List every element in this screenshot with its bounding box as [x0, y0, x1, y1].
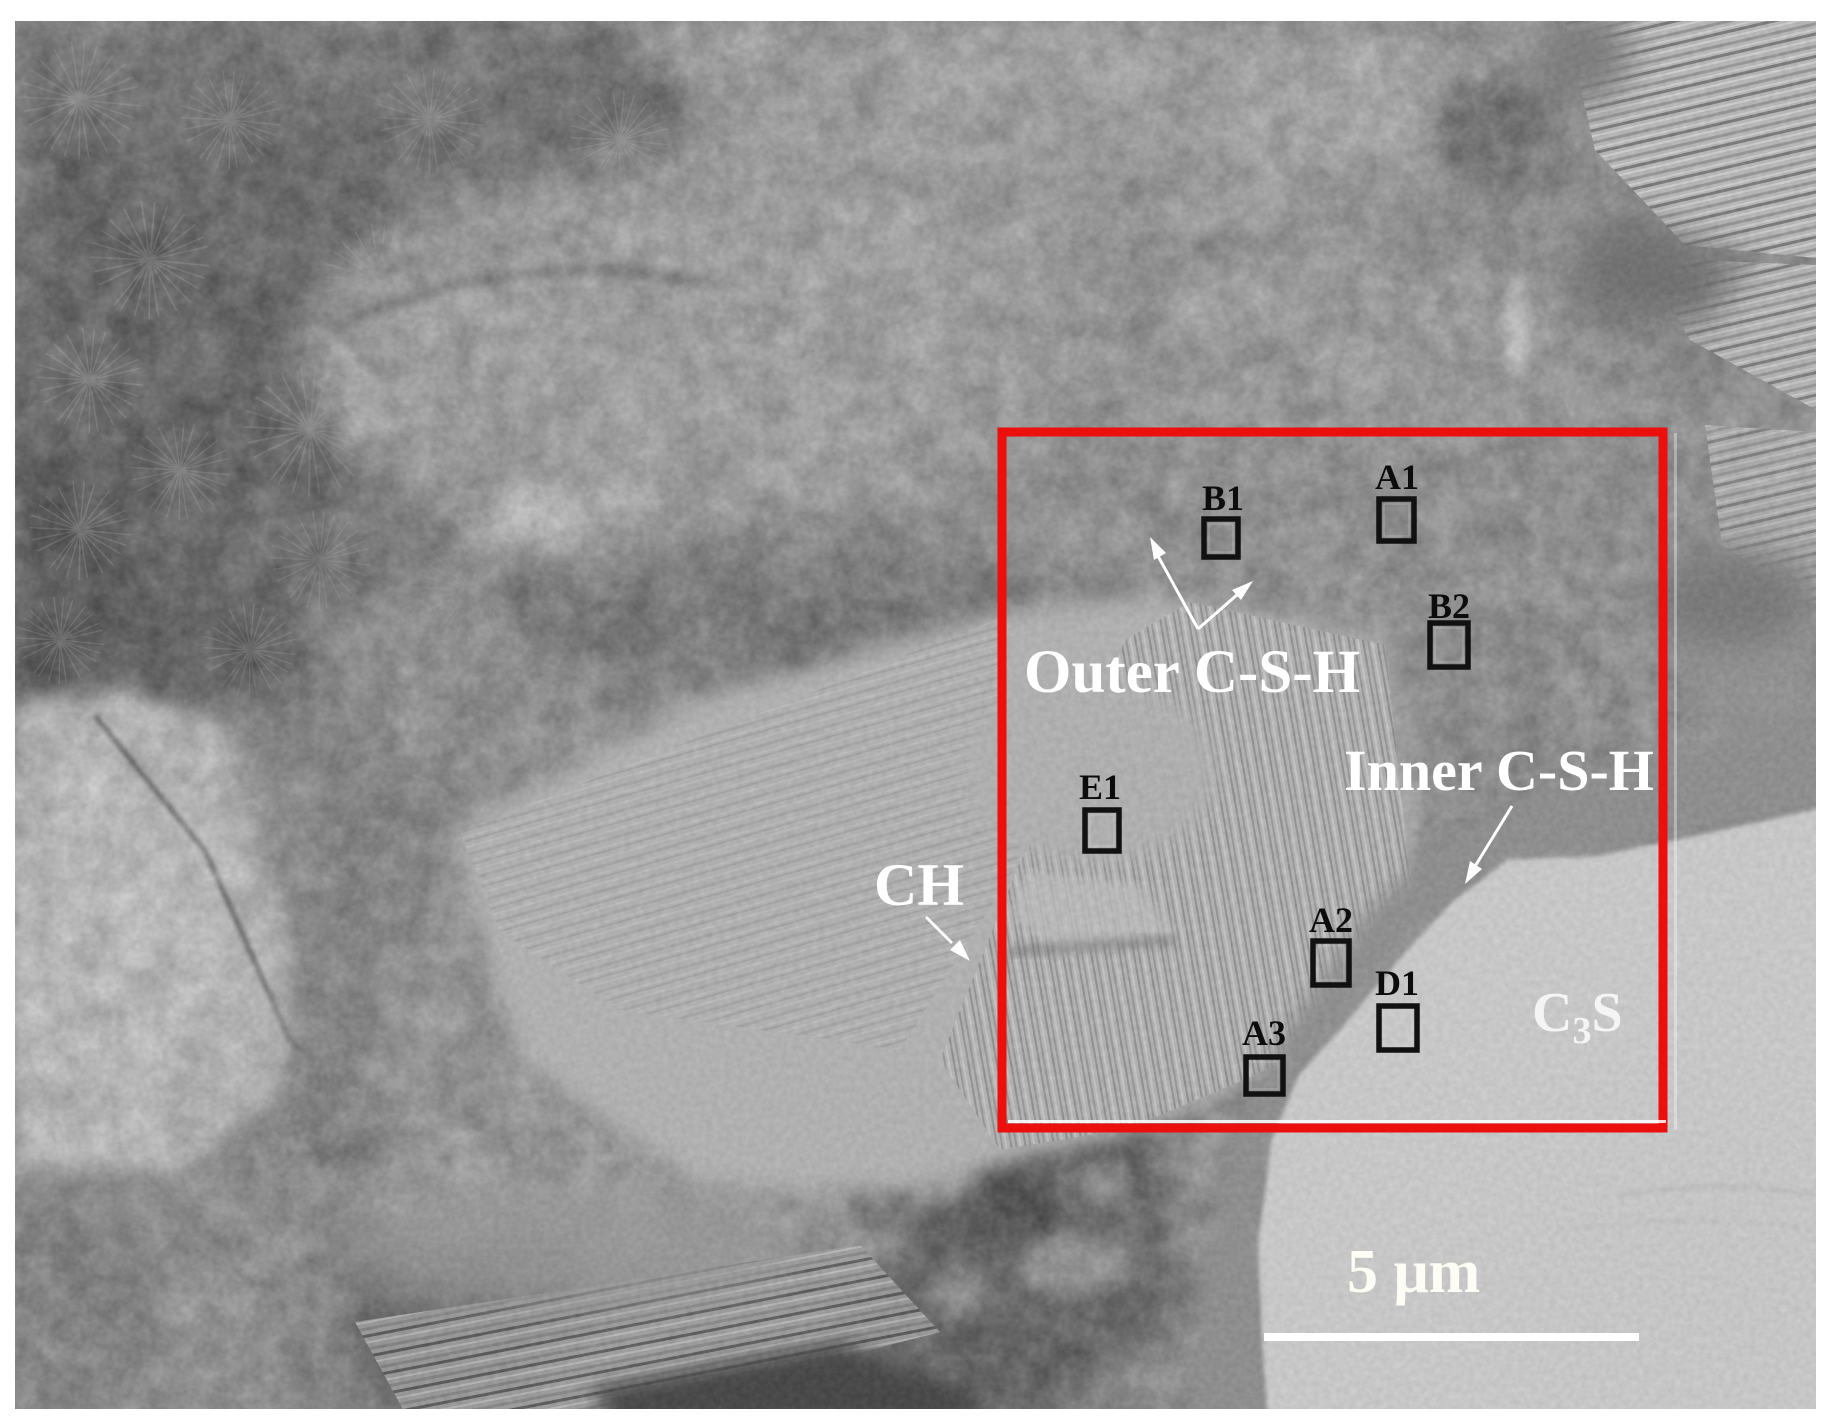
svg-text:5 μm: 5 μm — [1347, 1238, 1480, 1306]
svg-text:A2: A2 — [1309, 900, 1353, 940]
svg-text:A1: A1 — [1375, 457, 1419, 497]
svg-text:E1: E1 — [1079, 767, 1121, 807]
svg-text:Outer C-S-H: Outer C-S-H — [1024, 639, 1360, 706]
svg-text:B1: B1 — [1202, 478, 1244, 518]
svg-text:B2: B2 — [1428, 586, 1470, 626]
svg-text:A3: A3 — [1242, 1013, 1286, 1053]
svg-text:CH: CH — [874, 852, 964, 918]
svg-text:D1: D1 — [1375, 963, 1419, 1003]
svg-text:Inner C-S-H: Inner C-S-H — [1344, 738, 1654, 803]
